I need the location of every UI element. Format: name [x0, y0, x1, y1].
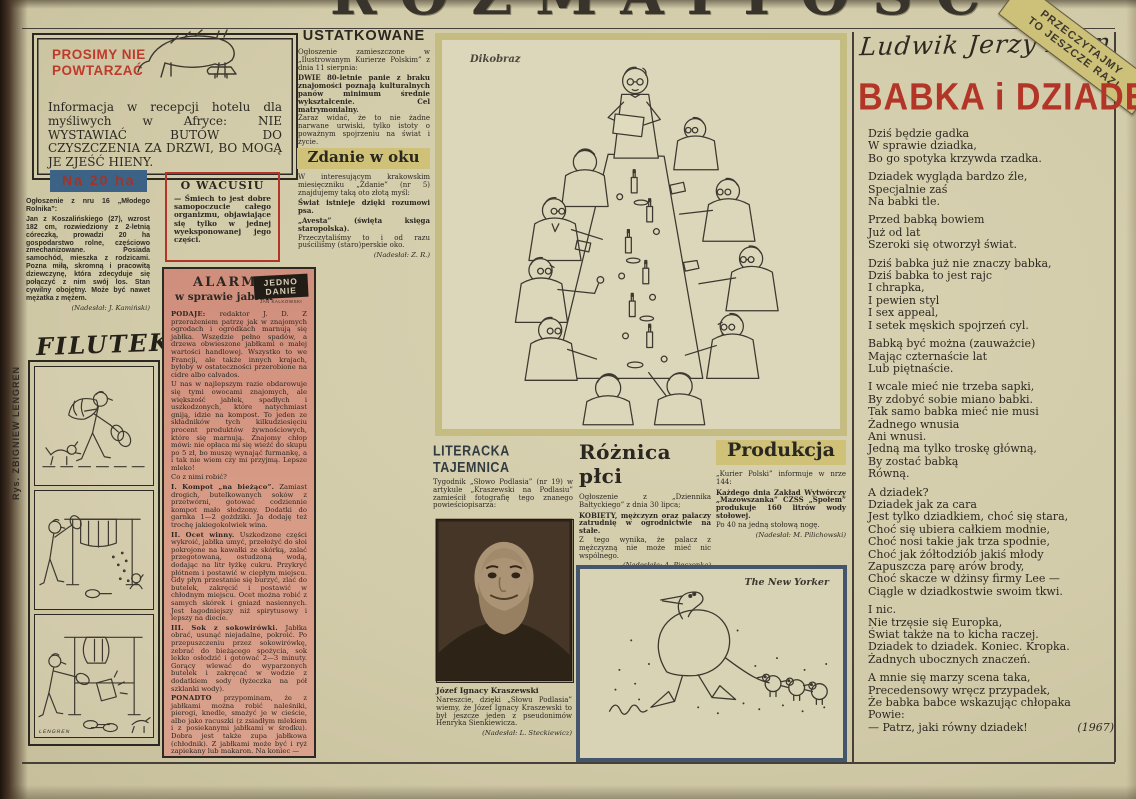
- na20ha-credit: (Nadesłał: J. Kamiński): [26, 305, 150, 313]
- alarm-paragraph: III. Sok z sokowirówki. Jabłka obrać, us…: [171, 625, 307, 693]
- poem-line: Powie:: [868, 709, 1114, 721]
- dikobraz-cartoon: Dikobraz: [435, 33, 847, 436]
- poem-stanza: Dziadek wygląda bardzo źle,Specjalnie za…: [868, 171, 1114, 208]
- poem-line: Lub piętnaście.: [868, 363, 1114, 375]
- produkcja-p3: Po 40 na jedną stołową nogę.: [716, 522, 846, 530]
- poem-title: BABKA i DZIADEK: [858, 76, 1116, 120]
- produkcja-article: Produkcja „Kurier Polski” informuje w nr…: [716, 440, 846, 539]
- poem-line: Choć skacze w dżinsy firmy Lee —: [868, 573, 1114, 585]
- literacka-intro: Tygodnik „Słowo Podlasia” (nr 19) w arty…: [433, 479, 573, 510]
- roznica-p1: Ogłoszenie z „Dziennika Bałtyckiego” z d…: [579, 494, 711, 510]
- poem-line: Choć nosi takie jak trza spodnie,: [868, 536, 1114, 548]
- na20ha-header-bar: Na 20 ha: [50, 170, 147, 192]
- prosimy-box: PROSIMY NIE POWTARZAĆ Informacja w recep…: [32, 33, 298, 180]
- literacka-title: LITERACKA TAJEMNICA: [433, 443, 573, 475]
- newyorker-cartoon: The New Yorker: [576, 565, 847, 762]
- na20ha-header: Na 20 ha: [62, 172, 136, 188]
- alarm-paragraphs: PODAJE: redaktor J. D. Z przerażeniem pa…: [171, 311, 307, 758]
- poem-body: Dziś będzie gadkaW sprawie dziadka,Bo go…: [868, 128, 1114, 740]
- zdanie-p2: Świat istnieje dzięki rozumowi psa.: [298, 199, 430, 215]
- produkcja-credit: (Nadesłał: M. Pilichowski): [716, 532, 846, 540]
- ustatkowane-article: USTATKOWANE Ogłoszenie zamieszczone w „I…: [298, 28, 430, 156]
- zdanie-article: W interesującym krakowskim miesięczniku …: [298, 174, 430, 260]
- alarm-box: JEDNO DANIE JAN KALKOWSKI ALARM w sprawi…: [162, 267, 316, 758]
- produkcja-header-band: Produkcja: [716, 440, 846, 465]
- newyorker-source-label: The New Yorker: [745, 577, 829, 588]
- poem-line: I chrapka,: [868, 282, 1114, 294]
- poem-stanza: A mnie się marzy scena taka,Precedensowy…: [868, 672, 1114, 734]
- ustatkowane-title: USTATKOWANE: [298, 28, 430, 44]
- poem-line: W sprawie dziadka,: [868, 140, 1114, 152]
- wacusiu-title: O WACUSIU: [174, 179, 271, 192]
- na20ha-intro: Ogłoszenie z nru 16 „Młodego Rolnika”:: [26, 198, 150, 214]
- poem-line: Babką być można (zauważcie): [868, 338, 1114, 350]
- poem-stanza: A dziadek?Dziadek jak za caraJest tylko …: [868, 487, 1114, 599]
- literacka-caption: Józef Ignacy Kraszewski Nareszcie, dzięk…: [436, 686, 572, 738]
- poem-line: Żadnych ubocznych znaczeń.: [868, 654, 1114, 666]
- poem-stanza: Dziś będzie gadkaW sprawie dziadka,Bo go…: [868, 128, 1114, 165]
- filutek-signature: LENGREN: [38, 729, 70, 735]
- alarm-paragraph: PONADTO przypominam, że z jabłkami można…: [171, 695, 307, 756]
- alarm-paragraph: II. Ocet winny. Uszkodzone części wykroi…: [171, 532, 307, 623]
- poem-stanza: Babką być można (zauważcie)Mając czterna…: [868, 338, 1114, 375]
- alarm-paragraph: U nas w najlepszym razie obdarowuje się …: [171, 381, 307, 472]
- alarm-paragraph: Co z nimi robić?: [171, 474, 307, 482]
- divider-center-right: [852, 32, 854, 762]
- roznica-article: Różnica płci Ogłoszenie z „Dziennika Bał…: [579, 440, 711, 570]
- zdanie-p3: „Avesta” (święta księga staropolska).: [298, 217, 430, 233]
- poem-line: A mnie się marzy scena taka,: [868, 672, 1114, 684]
- poem-line: Dziadek wygląda bardzo źle,: [868, 171, 1114, 183]
- poem-line: I wcale mieć nie trzeba sapki,: [868, 381, 1114, 393]
- alarm-paragraph: I. Kompot „na bieżąco”. Zamiast drogich,…: [171, 484, 307, 530]
- zdanie-credit: (Nadesłał: Z. R.): [298, 252, 430, 260]
- logo-author: JAN KALKOWSKI: [254, 299, 308, 304]
- alarm-paragraph: PODAJE: redaktor J. D. Z przerażeniem pa…: [171, 311, 307, 379]
- poem-line: Jest tylko dziadkiem, choć się stara,: [868, 511, 1114, 523]
- poem-line: — Patrz, jaki równy dziadek!(1967): [868, 722, 1114, 734]
- ustatkowane-p2: DWIE 80-letnie panie z braku znajomości …: [298, 74, 430, 113]
- prosimy-body: Informacja w recepcji hotelu dla myśliwy…: [48, 101, 282, 170]
- jedno-danie-logo: JEDNO DANIE JAN KALKOWSKI: [254, 275, 308, 304]
- roznica-p3: Z tego wynika, że palacz z mężczyzną nie…: [579, 537, 711, 560]
- poem-line: Jedną ma tylko troskę główną,: [868, 443, 1114, 455]
- wacusiu-body: — Śmiech to jest dobre samopoczucie całe…: [174, 195, 271, 244]
- filutek-panel-3: LENGREN: [34, 614, 154, 738]
- zdanie-header-band: Zdanie w oku: [297, 148, 430, 169]
- poem-stanza: I wcale mieć nie trzeba sapki,By zdobyć …: [868, 381, 1114, 480]
- roznica-title: Różnica płci: [579, 440, 711, 488]
- poem-line: I nic.: [868, 604, 1114, 616]
- poem-line: Równą.: [868, 468, 1114, 480]
- caption-body: Nareszcie, dzięki „Słowu Podlasia” wiemy…: [436, 697, 572, 728]
- poem-line: Przed babką bowiem: [868, 214, 1114, 226]
- poem-stanza: I nic.Nie trzęsie się Europka,Świat takż…: [868, 604, 1114, 666]
- filutek-title: FILUTEK: [36, 328, 159, 361]
- filutek-strip: LENGREN: [28, 360, 160, 746]
- poem-line: I setek męskich spojrzeń cyl.: [868, 320, 1114, 332]
- poem-stanza: Dziś babka już nie znaczy babka,Dziś bab…: [868, 258, 1114, 332]
- poem-line: Bo go spotyka krzywda rzadka.: [868, 153, 1114, 165]
- dikobraz-source-label: Dikobraz: [470, 54, 521, 65]
- roznica-p2: KOBIETY, mężczyzn oraz palaczy zatrudnię…: [579, 512, 711, 535]
- wacusiu-box: O WACUSIU — Śmiech to jest dobre samopoc…: [165, 172, 280, 262]
- literacka-article: LITERACKA TAJEMNICA Tygodnik „Słowo Podl…: [433, 443, 573, 512]
- right-frame-rule: [1114, 32, 1116, 762]
- kraszewski-photo: [436, 519, 574, 683]
- poem-line: Na babki tle.: [868, 196, 1114, 208]
- produkcja-p1: „Kurier Polski” informuje w nrze 144:: [716, 471, 846, 487]
- poem-line: Tak samo babka mieć nie musi: [868, 406, 1114, 418]
- filutek-panel-2: [34, 490, 154, 610]
- ustatkowane-p3: Zaraz widać, że to nie żadne narwane urw…: [298, 115, 430, 146]
- caption-title: Józef Ignacy Kraszewski: [436, 686, 572, 695]
- zdanie-p4: Przeczytaliśmy to i od razu puściliśmy (…: [298, 235, 430, 251]
- poem-stanza: Przed babką bowiemJuż od latSzeroki się …: [868, 214, 1114, 251]
- poem-line: I sex appeal,: [868, 307, 1114, 319]
- goose-drawing: [580, 569, 841, 756]
- na20ha-body: Jan z Koszalińskiego (27), wzrost 182 cm…: [26, 216, 150, 303]
- literacka-credit: (Nadesłał: L. Steckiewicz): [436, 730, 572, 738]
- banquet-drawing: [442, 40, 838, 427]
- na20ha-article: Ogłoszenie z nru 16 „Młodego Rolnika”: J…: [26, 198, 150, 313]
- hyena-drawing: [129, 23, 269, 81]
- ustatkowane-p1: Ogłoszenie zamieszczone w „Ilustrowanym …: [298, 49, 430, 72]
- poem-year: (1967): [1077, 722, 1114, 734]
- masthead-title: ROZMAITOŚCI: [330, 0, 1053, 28]
- bottom-rule: [22, 762, 1115, 764]
- poem-line: Szeroki się otworzył świat.: [868, 239, 1114, 251]
- produkcja-p2: Każdego dnia Zakład Wytwórczy „Mazowszan…: [716, 489, 846, 520]
- produkcja-title: Produkcja: [716, 439, 846, 461]
- poem-line: Że babka babce wskazując chłopaka: [868, 697, 1114, 709]
- magazine-page: ROZMAITOŚCI PROSIMY NIE POWTARZAĆ Inform…: [0, 0, 1136, 799]
- filutek-panel-1: [34, 366, 154, 486]
- poem-line: Ciągle w dziadkostwie swoim tkwi.: [868, 586, 1114, 598]
- zdanie-title: Zdanie w oku: [297, 148, 430, 166]
- zdanie-p1: W interesującym krakowskim miesięczniku …: [298, 174, 430, 197]
- filutek-artist-credit: Rys. ZBIGNIEW LENGREN: [11, 353, 21, 513]
- poem-line: Dziadek to dziadek. Koniec. Kropka.: [868, 641, 1114, 653]
